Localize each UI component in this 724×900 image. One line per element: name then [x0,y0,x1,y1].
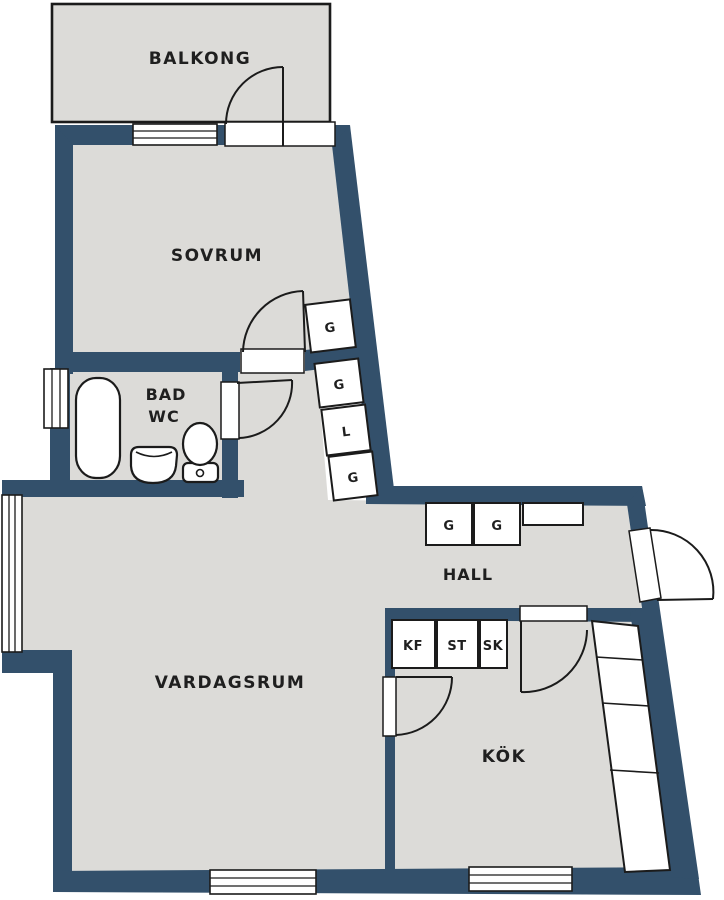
svg-text:L: L [341,425,352,441]
svg-text:G: G [491,519,502,534]
closet-stack-g2: G [328,451,377,500]
wall-left-lower [53,650,72,878]
bathtub [76,378,120,478]
kitchen-label: KÖK [482,745,527,767]
svg-text:KF: KF [403,639,423,654]
bath-label: BAD [146,385,187,404]
hall-cabinet [523,503,583,525]
kitchen-living-door-opening [383,677,396,736]
kitchen-unit-kf: KF [392,620,435,668]
kitchen-hall-door-opening [520,606,587,621]
window-living-bottom [210,870,316,894]
sink [131,447,177,483]
kitchen-unit-st: ST [437,620,478,668]
toilet [183,423,218,482]
wc-label: WC [148,407,179,426]
window-kitchen-bottom [469,867,572,891]
svg-text:G: G [324,320,337,336]
closet-hall-g2: G [474,503,520,545]
living-label: VARDAGSRUM [155,673,306,693]
floor-plan-canvas: G G L G G G KF ST SK [0,0,724,900]
svg-text:ST: ST [447,639,466,654]
floor-plan: G G L G G G KF ST SK [0,0,724,900]
svg-text:SK: SK [483,639,504,654]
wall-bedroom-bottom-left [70,352,240,372]
bedroom-door-opening [241,349,304,373]
window-bedroom-balcony [133,124,217,145]
balcony-label: BALKONG [149,49,252,69]
svg-text:G: G [347,470,360,486]
closet-bedroom-g: G [305,299,356,352]
closet-hall-g1: G [426,503,472,545]
closet-stack-l: L [321,404,370,455]
bathroom-door-opening [221,382,239,439]
window-bathroom [44,369,68,428]
svg-text:G: G [443,519,454,534]
wall-bottom [53,867,701,895]
kitchen-unit-sk: SK [480,620,507,668]
hall-label: HALL [443,565,493,584]
bedroom-label: SOVRUM [171,246,263,266]
svg-text:G: G [333,377,346,393]
window-living-left [2,495,22,652]
wall-bedroom-left [55,125,73,374]
balcony-door-opening [225,122,335,146]
closet-stack-g1: G [314,358,363,407]
